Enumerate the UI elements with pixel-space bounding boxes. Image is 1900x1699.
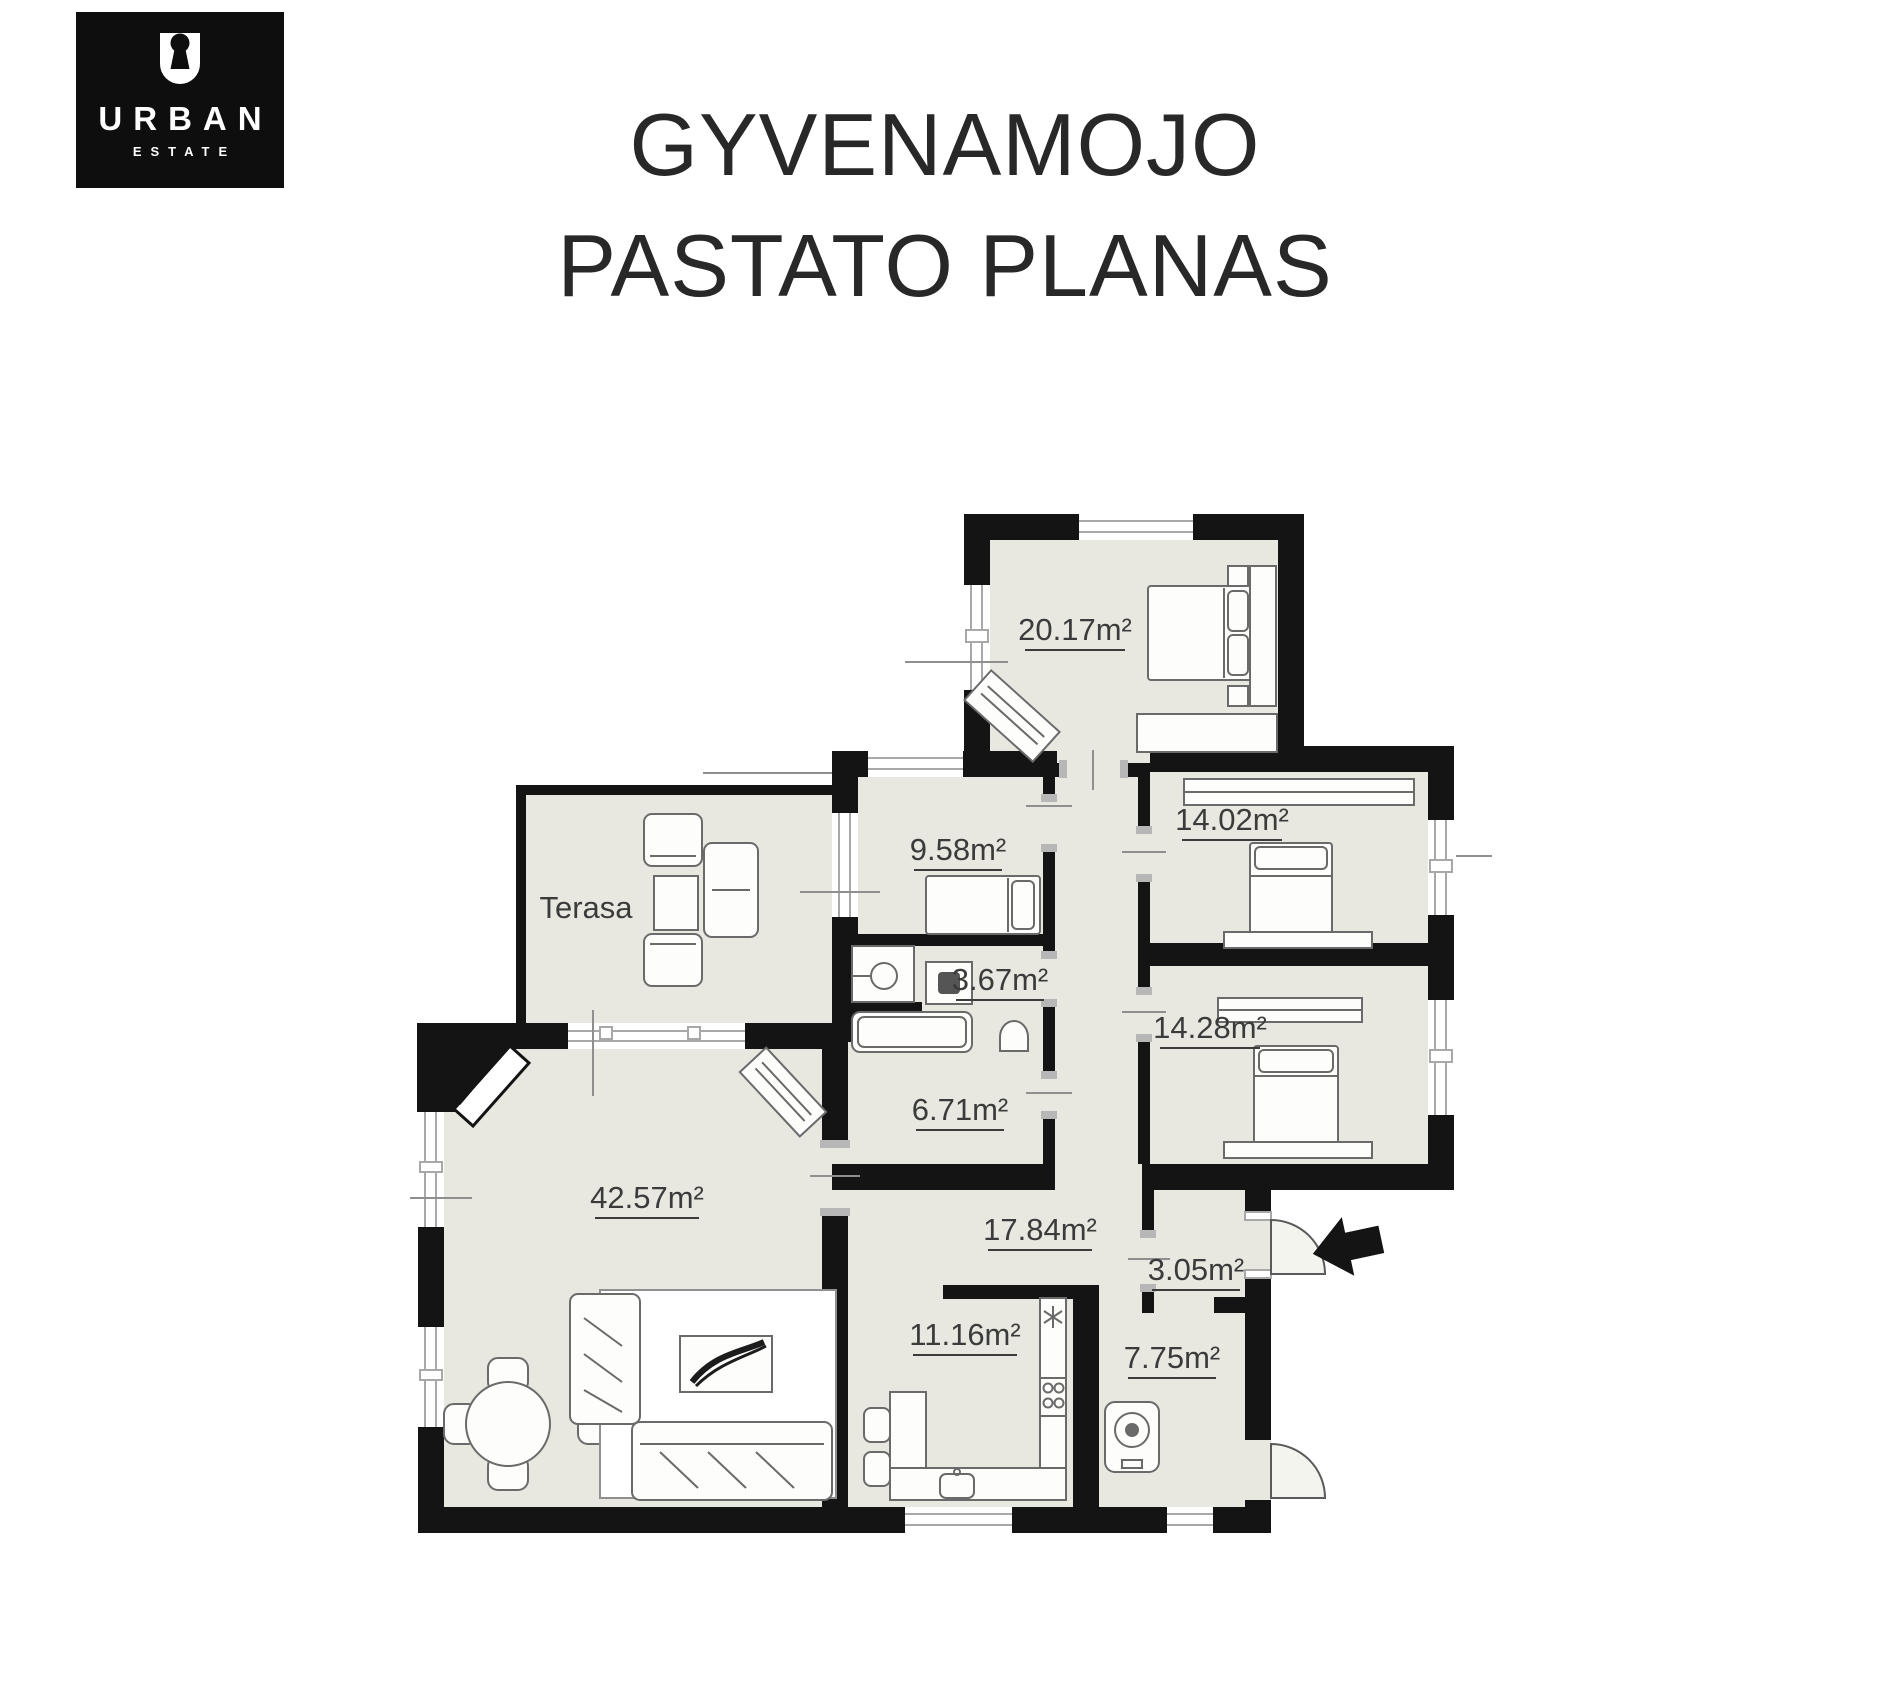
window (418, 1327, 444, 1427)
room-area-label-bathroom: 6.71m² (912, 1092, 1008, 1127)
room-area-label-bedroom-small: 9.58m² (910, 832, 1006, 867)
window (905, 1507, 1012, 1533)
window (1167, 1507, 1213, 1533)
washbasin-icon (852, 946, 914, 1002)
window (832, 813, 858, 917)
room-area-label-bedroom-east-2: 14.28m² (1153, 1010, 1267, 1045)
room-area-label-hallway: 17.84m² (983, 1212, 1097, 1247)
window (1428, 1000, 1454, 1115)
window (868, 751, 963, 777)
room-area-label-living-room: 42.57m² (590, 1180, 704, 1215)
floor-plan: 20.17m² 9.58m² 3.67m² 14.02m² 14.28m² 6.… (0, 0, 1900, 1699)
terrace-loveseat-icon (704, 843, 758, 937)
dresser-icon (1137, 714, 1277, 752)
window (964, 585, 990, 690)
room-area-label-utility: 7.75m² (1124, 1340, 1220, 1375)
boiler-icon (1105, 1402, 1159, 1472)
page: URBAN ESTATE GYVENAMOJO PASTATO PLANAS (0, 0, 1900, 1699)
terrace-table-icon (654, 876, 698, 930)
room-area-label-bedroom-east-1: 14.02m² (1175, 802, 1289, 837)
terrace-armchair-icon (644, 814, 702, 866)
room-label-terrace: Terasa (539, 890, 633, 925)
bathtub-icon (852, 1012, 972, 1052)
room-area-label-bedroom-top: 20.17m² (1018, 612, 1132, 647)
window (1079, 514, 1193, 540)
room-area-label-wc: 3.67m² (952, 962, 1048, 997)
room-area-label-entry: 3.05m² (1148, 1252, 1244, 1287)
stove-icon (1040, 1378, 1066, 1416)
toilet-icon (1000, 1021, 1028, 1051)
terrace-slider-door (568, 1023, 745, 1049)
terrace-armchair-icon (644, 934, 702, 986)
tv-table-icon (680, 1336, 772, 1392)
room-area-label-kitchen: 11.16m² (909, 1317, 1020, 1352)
window (418, 1112, 444, 1227)
window (1428, 820, 1454, 915)
sink-icon (940, 1469, 974, 1498)
single-bed-icon (926, 876, 1040, 934)
entry-door (1271, 1210, 1388, 1498)
